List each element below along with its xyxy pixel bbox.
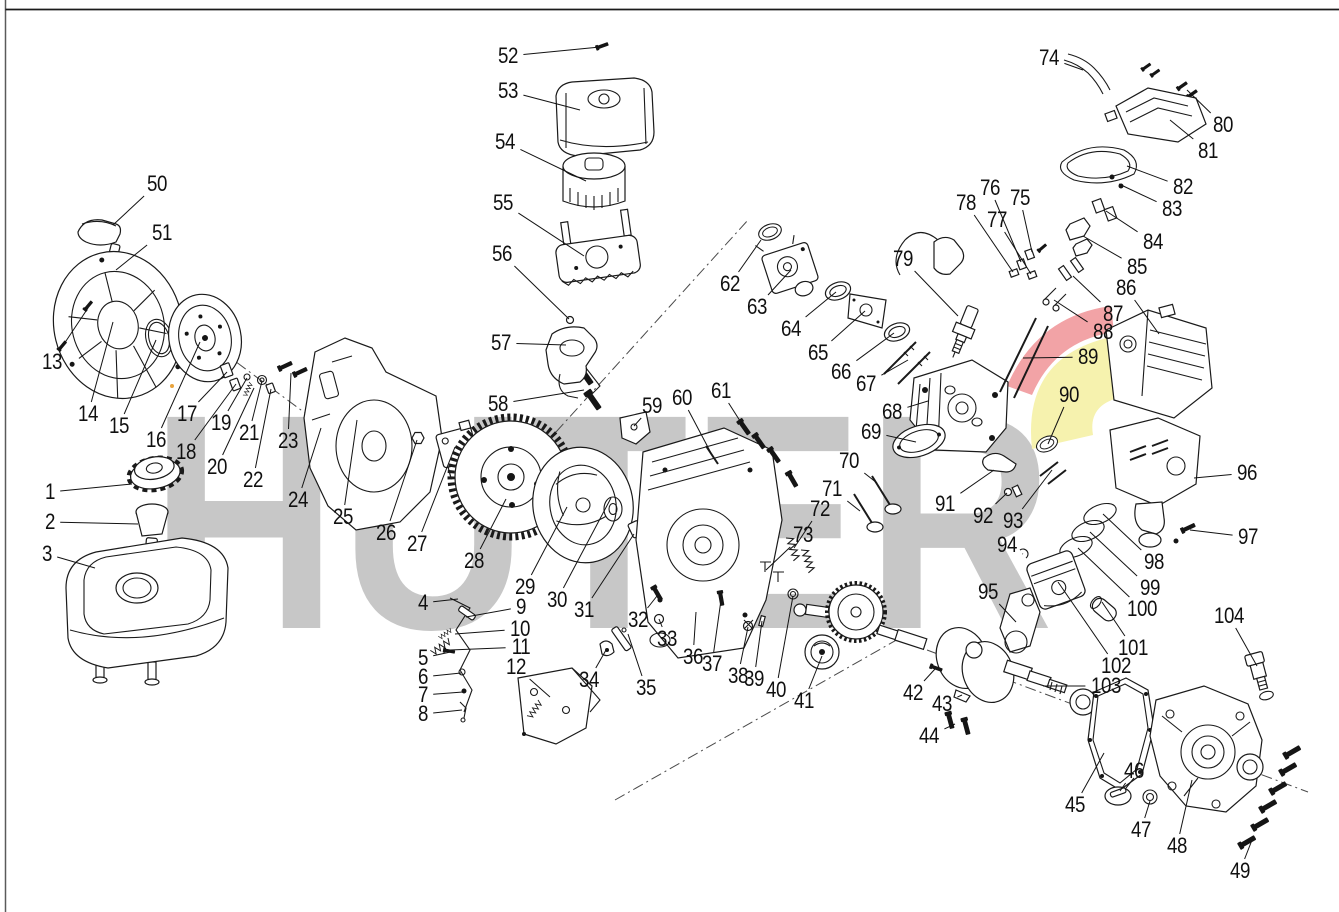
cover-bolt (1278, 761, 1298, 777)
governor-gear (805, 635, 839, 669)
paint-dot (170, 384, 174, 388)
stud-nut (1110, 175, 1115, 180)
air-filter-element (563, 153, 625, 210)
leader-line-79 (915, 271, 958, 316)
leader-line-100 (1078, 548, 1129, 597)
leader-line-1 (60, 484, 132, 491)
leader-line-52 (523, 47, 600, 55)
crankcase-cover (1150, 686, 1262, 812)
leader-line-84 (1106, 211, 1138, 232)
leader-line-50 (113, 196, 144, 225)
valve-cover-gasket (1061, 147, 1137, 183)
muffler-nut (1174, 539, 1179, 544)
carb-insulator (848, 294, 886, 328)
leader-line-2 (60, 522, 138, 524)
cover-bolt (1282, 744, 1302, 760)
cover-bolt (1258, 798, 1278, 814)
muffler-bolt (1180, 522, 1197, 534)
valve-lifters (1043, 288, 1066, 311)
cover-bolt (1237, 834, 1257, 850)
valve-guide-parts (1092, 199, 1117, 221)
leader-line-62 (739, 240, 762, 272)
breather-tube (1064, 54, 1110, 94)
leader-line-87 (1073, 276, 1100, 302)
carb-gasket (756, 221, 783, 243)
spark-plug-cap (896, 233, 964, 276)
cable-clamp (600, 641, 614, 656)
case-bolt (960, 717, 972, 736)
cover-gasket (1088, 678, 1154, 790)
cover-screw (1140, 62, 1152, 72)
leader-line-55 (518, 213, 584, 256)
leader-line-97 (1190, 530, 1233, 535)
exploded-parts-diagram: HUTER (0, 0, 1339, 912)
cover-screw (1176, 81, 1189, 92)
leader-line-96 (1194, 475, 1232, 479)
intake-gasket (882, 320, 912, 345)
leader-line-8 (433, 710, 462, 713)
rocker-pins (1059, 258, 1084, 281)
cover-bolt (1250, 816, 1270, 832)
cover-bearing (1237, 754, 1263, 780)
cover-bolt (1268, 780, 1288, 796)
leader-line-83 (1119, 184, 1157, 202)
cover-screw (1149, 68, 1161, 78)
air-filter-base (551, 209, 642, 287)
oil-sensor (1244, 651, 1274, 702)
rocker-supports (1066, 218, 1092, 256)
air-filter-cover (556, 78, 654, 156)
leader-line-64 (806, 292, 836, 317)
wing-screw (595, 41, 609, 51)
leader-line-82 (1127, 166, 1168, 181)
carburetor (755, 230, 822, 305)
flange-nut (412, 433, 424, 444)
parts-line-art: HUTER (0, 0, 1339, 912)
leader-line-99 (1090, 532, 1137, 576)
piston-pin (1088, 594, 1119, 623)
leader-line-75 (1023, 210, 1032, 252)
leader-line-78 (974, 215, 1013, 272)
muffler (1106, 304, 1212, 418)
